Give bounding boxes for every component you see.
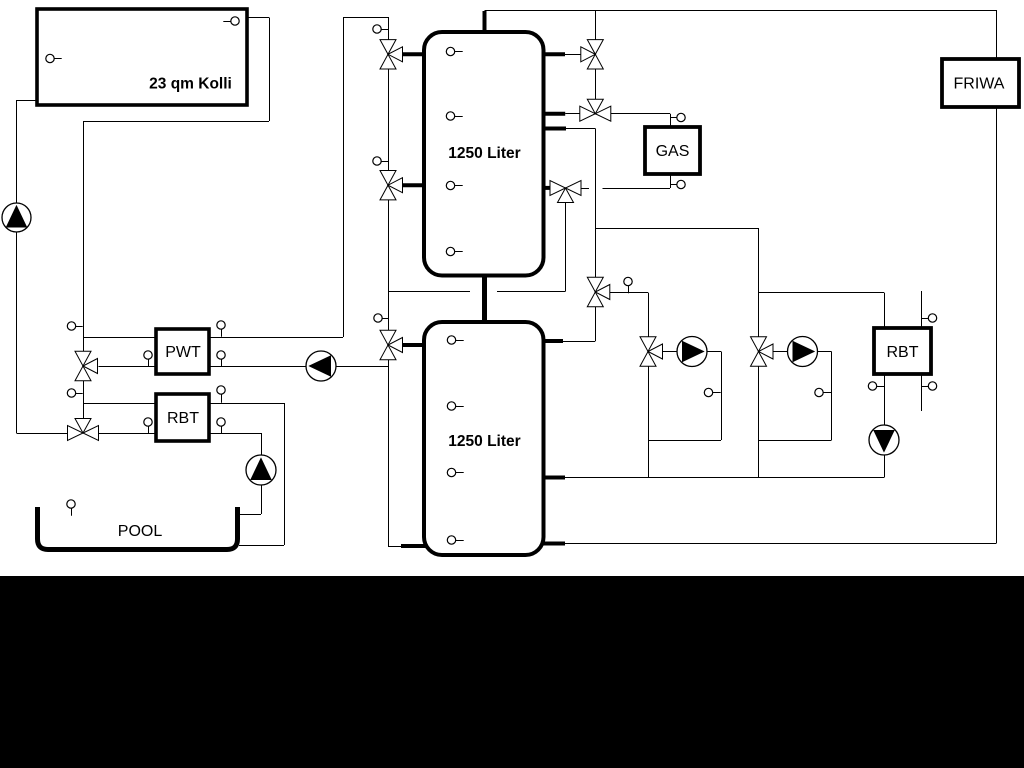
svg-text:PWT: PWT [165, 344, 201, 361]
svg-text:RBT: RBT [167, 410, 199, 427]
svg-text:FRIWA: FRIWA [954, 76, 1005, 93]
svg-text:RBT: RBT [887, 344, 919, 361]
svg-text:POOL: POOL [118, 523, 163, 540]
svg-text:GAS: GAS [656, 143, 690, 160]
svg-text:23 qm Kolli: 23 qm Kolli [149, 76, 232, 93]
svg-text:1250 Liter: 1250 Liter [448, 433, 520, 450]
svg-text:1250 Liter: 1250 Liter [448, 145, 520, 162]
